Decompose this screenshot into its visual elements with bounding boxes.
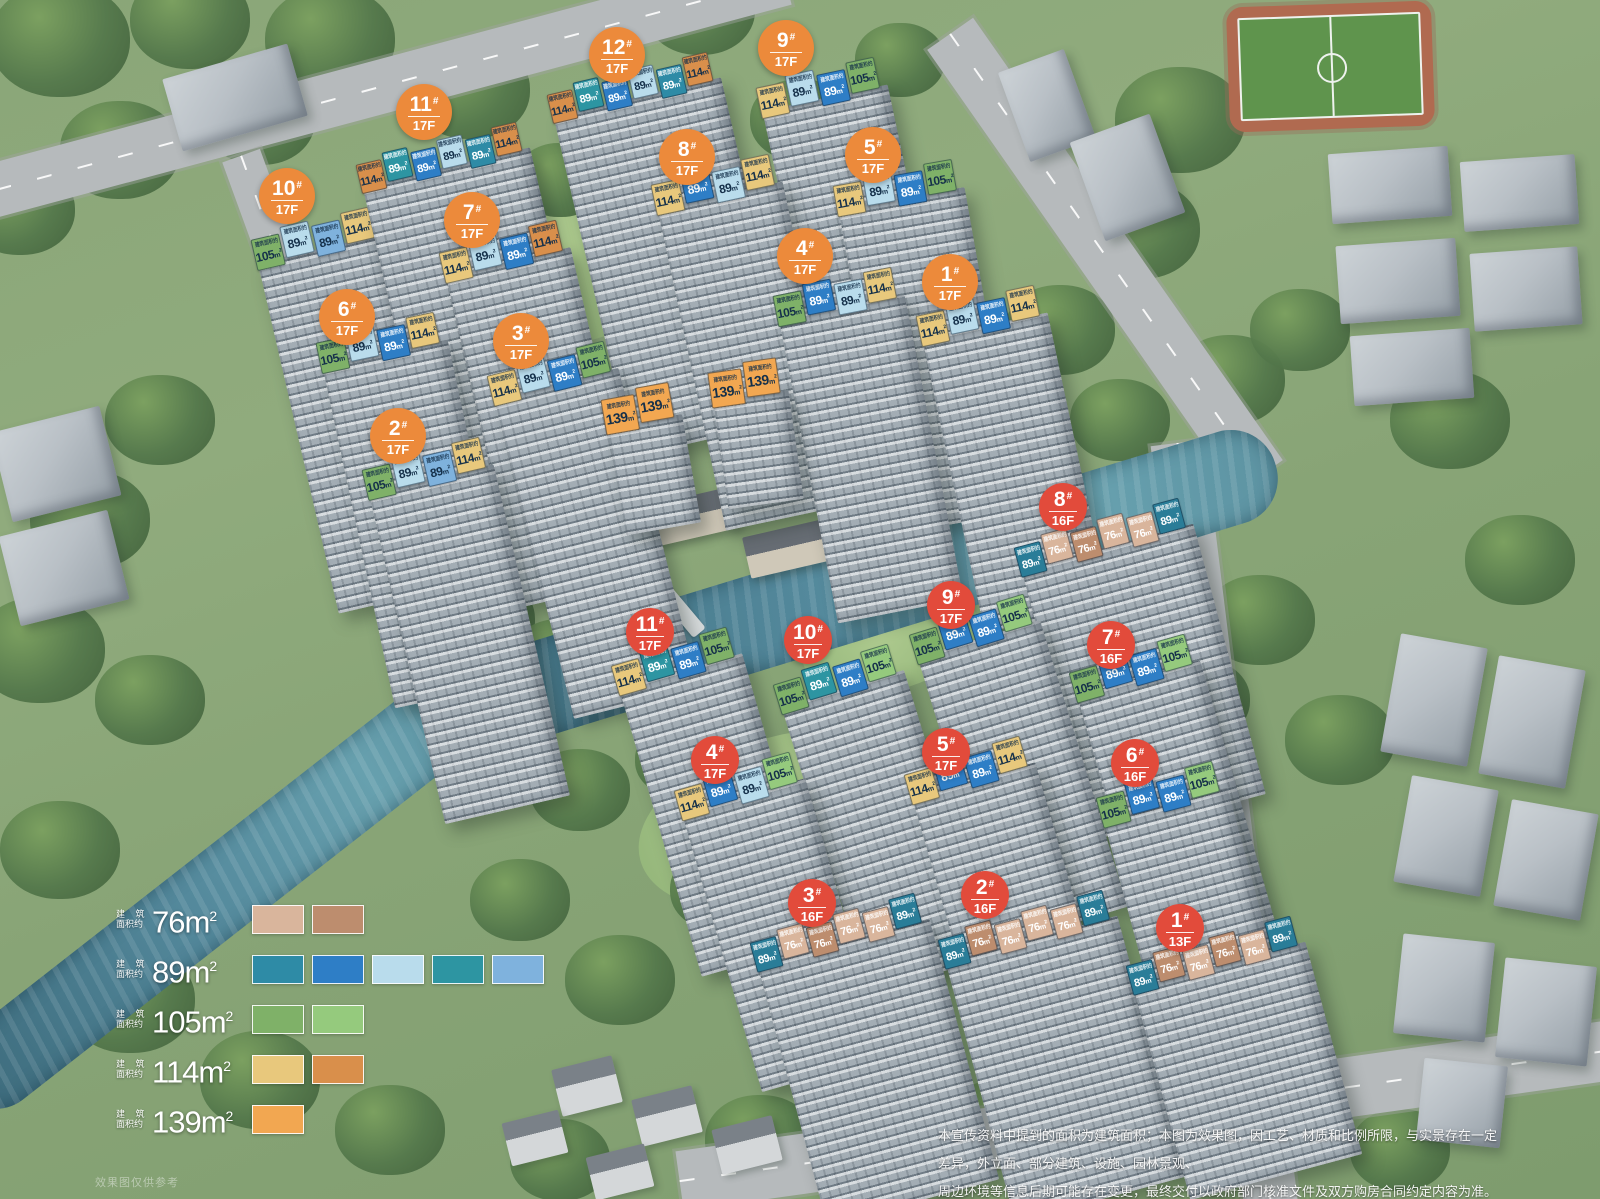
roof-tile: 建筑面积约114m2 — [650, 179, 685, 216]
badge-divider — [701, 764, 729, 765]
badge-divider — [971, 899, 999, 900]
badge-floors: 17F — [510, 348, 532, 361]
roof-tile: 建筑面积约89m2 — [816, 69, 851, 106]
badge-floors: 16F — [1124, 770, 1146, 783]
roof-tile: 建筑面积约114m2 — [486, 369, 522, 407]
building-tower — [713, 390, 804, 510]
badge-divider — [382, 440, 414, 441]
badge-floors: 17F — [775, 55, 797, 68]
legend-row: 建 筑面积约89m2 — [116, 953, 544, 985]
roof-tile: 建筑面积约89m2 — [381, 147, 413, 182]
badge-number: 3# — [512, 321, 530, 343]
roof-tile: 建筑面积约89m2 — [547, 354, 583, 392]
roof-tile: 建筑面积约114m2 — [405, 312, 440, 349]
building-badge-north-3: 3#17F — [493, 313, 549, 369]
legend-color-swatch — [252, 1105, 304, 1134]
building-badge-south-2: 2#16F — [961, 871, 1009, 919]
badge-number: 4# — [706, 740, 724, 762]
badge-number: 1# — [1171, 908, 1189, 930]
legend-color-swatch — [312, 905, 364, 934]
building-north-11: 建筑面积约114m2建筑面积约89m2建筑面积约89m2建筑面积约89m2建筑面… — [355, 126, 523, 193]
context-building — [1328, 146, 1453, 224]
badge-number: 2# — [976, 875, 994, 897]
roof-tile: 建筑面积约89m2 — [279, 221, 314, 259]
roof-tile: 建筑面积约105m2 — [250, 233, 285, 271]
context-building — [1469, 246, 1582, 331]
badge-floors: 17F — [704, 767, 726, 780]
legend-color-swatch — [372, 955, 424, 984]
badge-floors: 16F — [974, 902, 996, 915]
roof-tile: 建筑面积约89m2 — [422, 449, 457, 487]
context-building — [1478, 655, 1586, 788]
roof-tile: 建筑面积约89m2 — [499, 232, 534, 270]
legend-color-swatch — [252, 1055, 304, 1084]
badge-floors: 17F — [606, 62, 628, 75]
soccer-pitch — [1237, 12, 1423, 121]
badge-number: 8# — [678, 137, 696, 159]
roof-tile: 建筑面积约114m2 — [740, 154, 775, 191]
tree — [0, 801, 120, 899]
building-badge-north-5: 5#17F — [845, 127, 901, 183]
badge-number: 7# — [463, 200, 481, 222]
badge-floors: 17F — [862, 162, 884, 175]
badge-number: 10# — [272, 176, 302, 198]
badge-floors: 17F — [413, 119, 435, 132]
legend-area-label: 76m2 — [152, 901, 252, 937]
context-building — [1335, 238, 1460, 324]
legend-area-label: 139m2 — [152, 1101, 252, 1137]
badge-number: 11# — [410, 92, 439, 114]
roof-tile: 建筑面积约139m2 — [742, 357, 781, 397]
building-badge-north-6: 6#17F — [319, 289, 375, 345]
building-badge-north-4: 4#17F — [777, 228, 833, 284]
context-building — [0, 510, 129, 626]
legend-color-swatch — [312, 955, 364, 984]
legend-color-swatch — [312, 1055, 364, 1084]
badge-number: 11# — [636, 612, 665, 634]
badge-floors: 17F — [794, 263, 816, 276]
tree — [0, 0, 130, 97]
building-badge-south-9: 9#17F — [927, 581, 975, 629]
roof-tile: 建筑面积约89m2 — [311, 219, 346, 257]
soccer-field — [1226, 0, 1435, 132]
roof-tile: 建筑面积约114m2 — [1005, 285, 1040, 322]
badge-floors: 16F — [1100, 652, 1122, 665]
building-badge-south-6: 6#16F — [1111, 739, 1159, 787]
tree — [1285, 695, 1395, 785]
badge-floors: 17F — [940, 612, 962, 625]
roof-area-value: 89m2 — [868, 181, 891, 201]
badge-divider — [937, 609, 965, 610]
building-badge-north-12: 12#17F — [589, 27, 645, 83]
roof-tile: 建筑面积约89m2 — [802, 279, 837, 316]
badge-divider — [789, 260, 821, 261]
roof-tile: 建筑面积约105m2 — [845, 57, 880, 94]
building-badge-south-8: 8#16F — [1039, 483, 1087, 531]
badge-number: 9# — [942, 585, 960, 607]
legend-color-swatch — [312, 1005, 364, 1034]
roof-tile: 建筑面积约89m2 — [893, 170, 927, 207]
badge-floors: 17F — [939, 289, 961, 302]
building-badge-south-3: 3#16F — [788, 879, 836, 927]
badge-divider — [601, 59, 633, 60]
roof-tile: 建筑面积约89m2 — [833, 279, 868, 316]
context-building — [1493, 799, 1598, 921]
badge-divider — [1121, 767, 1149, 768]
legend-caption: 建 筑面积约 — [116, 1009, 152, 1029]
roof-tile: 建筑面积约139m2 — [707, 368, 746, 408]
legend-row: 建 筑面积约139m2 — [116, 1103, 544, 1135]
context-building — [1495, 957, 1597, 1066]
building-badge-south-1: 1#13F — [1156, 904, 1204, 952]
legend-area-label: 114m2 — [152, 1051, 252, 1087]
legend-caption: 建 筑面积约 — [116, 1109, 152, 1129]
legend-swatches — [252, 1055, 364, 1084]
building-badge-south-11: 11#17F — [626, 608, 674, 656]
legend-area-label: 105m2 — [152, 1001, 252, 1037]
context-building — [1380, 633, 1488, 766]
badge-divider — [857, 159, 889, 160]
legend-color-swatch — [252, 955, 304, 984]
badge-divider — [331, 321, 363, 322]
building-badge-north-11: 11#17F — [396, 84, 452, 140]
badge-floors: 16F — [801, 910, 823, 923]
badge-floors: 17F — [639, 639, 661, 652]
roof-tile: 建筑面积约89m2 — [465, 134, 497, 169]
roof-tile: 建筑面积约105m2 — [361, 463, 396, 501]
badge-number: 3# — [803, 883, 821, 905]
building-badge-south-4: 4#17F — [691, 736, 739, 784]
legend-color-swatch — [252, 905, 304, 934]
badge-floors: 17F — [797, 647, 819, 660]
legend-color-swatch — [492, 955, 544, 984]
roof-tile: 建筑面积约139m2 — [600, 394, 640, 435]
badge-floors: 13F — [1169, 935, 1191, 948]
site-plan: 建筑面积约105m2建筑面积约89m2建筑面积约89m2建筑面积约114m210… — [0, 0, 1600, 1199]
badge-floors: 17F — [935, 759, 957, 772]
legend-row: 建 筑面积约105m2 — [116, 1003, 544, 1035]
badge-divider — [505, 345, 537, 346]
roof-tile: 建筑面积约105m2 — [923, 159, 957, 196]
roof-tile: 建筑面积约89m2 — [1264, 916, 1298, 953]
building-badge-north-2: 2#17F — [370, 408, 426, 464]
badge-number: 8# — [1054, 487, 1072, 509]
badge-number: 5# — [937, 732, 955, 754]
tree — [95, 655, 205, 745]
building-badge-south-7: 7#16F — [1087, 621, 1135, 669]
badge-number: 9# — [777, 28, 795, 50]
building-badge-south-10: 10#17F — [784, 616, 832, 664]
roof-tile: 建筑面积约139m2 — [635, 382, 675, 423]
legend-swatches — [252, 1105, 304, 1134]
badge-number: 2# — [389, 416, 407, 438]
roof-tile: 建筑面积约114m2 — [863, 267, 898, 304]
badge-divider — [798, 907, 826, 908]
tree — [1250, 289, 1350, 371]
badge-divider — [1097, 649, 1125, 650]
badge-floors: 17F — [387, 443, 409, 456]
roof-tile: 建筑面积约89m2 — [436, 134, 468, 169]
roof-tile: 建筑面积约89m2 — [410, 147, 442, 182]
badge-divider — [932, 756, 960, 757]
roof-area-value: 89m2 — [900, 182, 923, 202]
disclaimer-line-2: 周边环境等信息后期可能存在变更，最终交付以政府部门核准文件及双方购房合同约定内容… — [938, 1178, 1498, 1199]
badge-divider — [1166, 932, 1194, 933]
roof-tile: 建筑面积约114m2 — [682, 52, 714, 87]
badge-divider — [794, 644, 822, 645]
roof-tile: 建筑面积约114m2 — [355, 159, 387, 194]
roof-tile: 建筑面积约114m2 — [832, 181, 866, 218]
tree — [565, 935, 675, 1025]
building-badge-north-10: 10#17F — [259, 168, 315, 224]
badge-number: 6# — [338, 297, 356, 319]
badge-number: 4# — [796, 236, 814, 258]
legend-row: 建 筑面积约76m2 — [116, 903, 544, 935]
badge-divider — [636, 636, 664, 637]
roof-tile: 建筑面积约114m2 — [491, 122, 523, 157]
context-building — [1393, 775, 1498, 897]
badge-number: 7# — [1102, 625, 1120, 647]
watermark: 效果图仅供参考 — [95, 1174, 179, 1190]
roof-tile: 建筑面积约89m2 — [711, 166, 746, 203]
roof-tile: 建筑面积约114m2 — [438, 246, 473, 284]
badge-divider — [770, 52, 802, 53]
low-rise-house — [631, 1085, 703, 1147]
legend-swatches — [252, 955, 544, 984]
building-badge-north-1: 1#17F — [922, 254, 978, 310]
roof-tile: 建筑面积约89m2 — [572, 77, 604, 112]
roof-tile: 建筑面积约114m2 — [915, 310, 950, 347]
badge-number: 1# — [941, 262, 959, 284]
badge-divider — [408, 116, 440, 117]
legend-caption: 建 筑面积约 — [116, 959, 152, 979]
context-building — [1460, 154, 1580, 232]
badge-divider — [671, 161, 703, 162]
legend-swatches — [252, 905, 364, 934]
legend-swatches — [252, 1005, 364, 1034]
legend-color-swatch — [432, 955, 484, 984]
badge-number: 12# — [602, 35, 632, 57]
context-building — [1350, 328, 1475, 406]
badge-floors: 17F — [336, 324, 358, 337]
roof-tile: 建筑面积约89m2 — [376, 324, 411, 361]
badge-floors: 17F — [276, 203, 298, 216]
roof-tile: 建筑面积约89m2 — [976, 297, 1011, 334]
badge-divider — [271, 200, 303, 201]
badge-divider — [1049, 511, 1077, 512]
tree — [1465, 515, 1575, 605]
badge-floors: 17F — [676, 164, 698, 177]
building-badge-south-5: 5#17F — [922, 728, 970, 776]
low-rise-house — [551, 1055, 623, 1117]
disclaimer: 本宣传资料中提到的面积为建筑面积；本图为效果图，因工艺、材质和比例所限，与实景存… — [938, 1122, 1498, 1199]
legend-caption: 建 筑面积约 — [116, 1059, 152, 1079]
badge-divider — [934, 286, 966, 287]
building-badge-north-7: 7#17F — [444, 192, 500, 248]
context-building — [1393, 933, 1495, 1042]
badge-number: 6# — [1126, 743, 1144, 765]
roof-tile: 建筑面积约89m2 — [656, 64, 688, 99]
tree — [105, 375, 215, 465]
disclaimer-line-1: 本宣传资料中提到的面积为建筑面积；本图为效果图，因工艺、材质和比例所限，与实景存… — [938, 1122, 1498, 1178]
badge-divider — [456, 224, 488, 225]
roof-tile: 建筑面积约114m2 — [755, 82, 790, 119]
badge-floors: 17F — [461, 227, 483, 240]
badge-number: 10# — [793, 620, 823, 642]
legend-row: 建 筑面积约114m2 — [116, 1053, 544, 1085]
badge-floors: 16F — [1052, 514, 1074, 527]
legend-area-label: 89m2 — [152, 951, 252, 987]
roof-tile: 建筑面积约105m2 — [772, 290, 807, 327]
legend-caption: 建 筑面积约 — [116, 909, 152, 929]
legend: 建 筑面积约76m2建 筑面积约89m2建 筑面积约105m2建 筑面积约114… — [116, 903, 544, 1135]
building-badge-north-9: 9#17F — [758, 20, 814, 76]
building-badge-north-8: 8#17F — [659, 129, 715, 185]
legend-color-swatch — [252, 1005, 304, 1034]
roof-tile: 建筑面积约114m2 — [546, 89, 578, 124]
badge-number: 5# — [864, 135, 882, 157]
